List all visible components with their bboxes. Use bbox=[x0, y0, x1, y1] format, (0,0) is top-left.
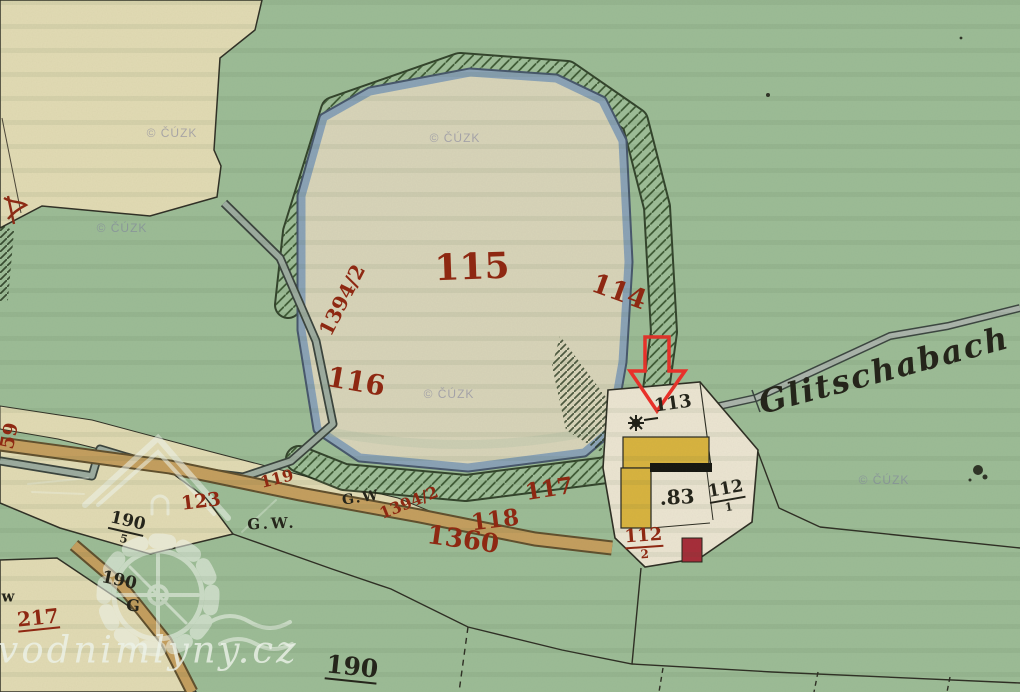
map-canvas[interactable]: 11511411611711811912313601394/21394/2592… bbox=[0, 0, 1020, 692]
label-house-number-83: .83 bbox=[659, 486, 695, 508]
label-parcel-115-pond: 115 bbox=[434, 248, 510, 287]
label-parcel-123: 123 bbox=[180, 490, 222, 514]
label-mark-gw-1: G.W. bbox=[247, 516, 297, 533]
label-parcel-112-1: 1121 bbox=[707, 478, 748, 516]
label-parcel-112-2: 1122 bbox=[624, 526, 664, 562]
label-mark-w-edge: w bbox=[2, 590, 15, 605]
label-grass-mark-g: G bbox=[126, 598, 141, 615]
label-parcel-217: 217 bbox=[16, 605, 60, 632]
label-parcel-113: 113 bbox=[653, 392, 693, 415]
label-parcel-190-bottom: 190 bbox=[325, 651, 380, 684]
cadastral-map-drawing bbox=[0, 0, 1020, 692]
label-parcel-117: 117 bbox=[523, 474, 574, 504]
